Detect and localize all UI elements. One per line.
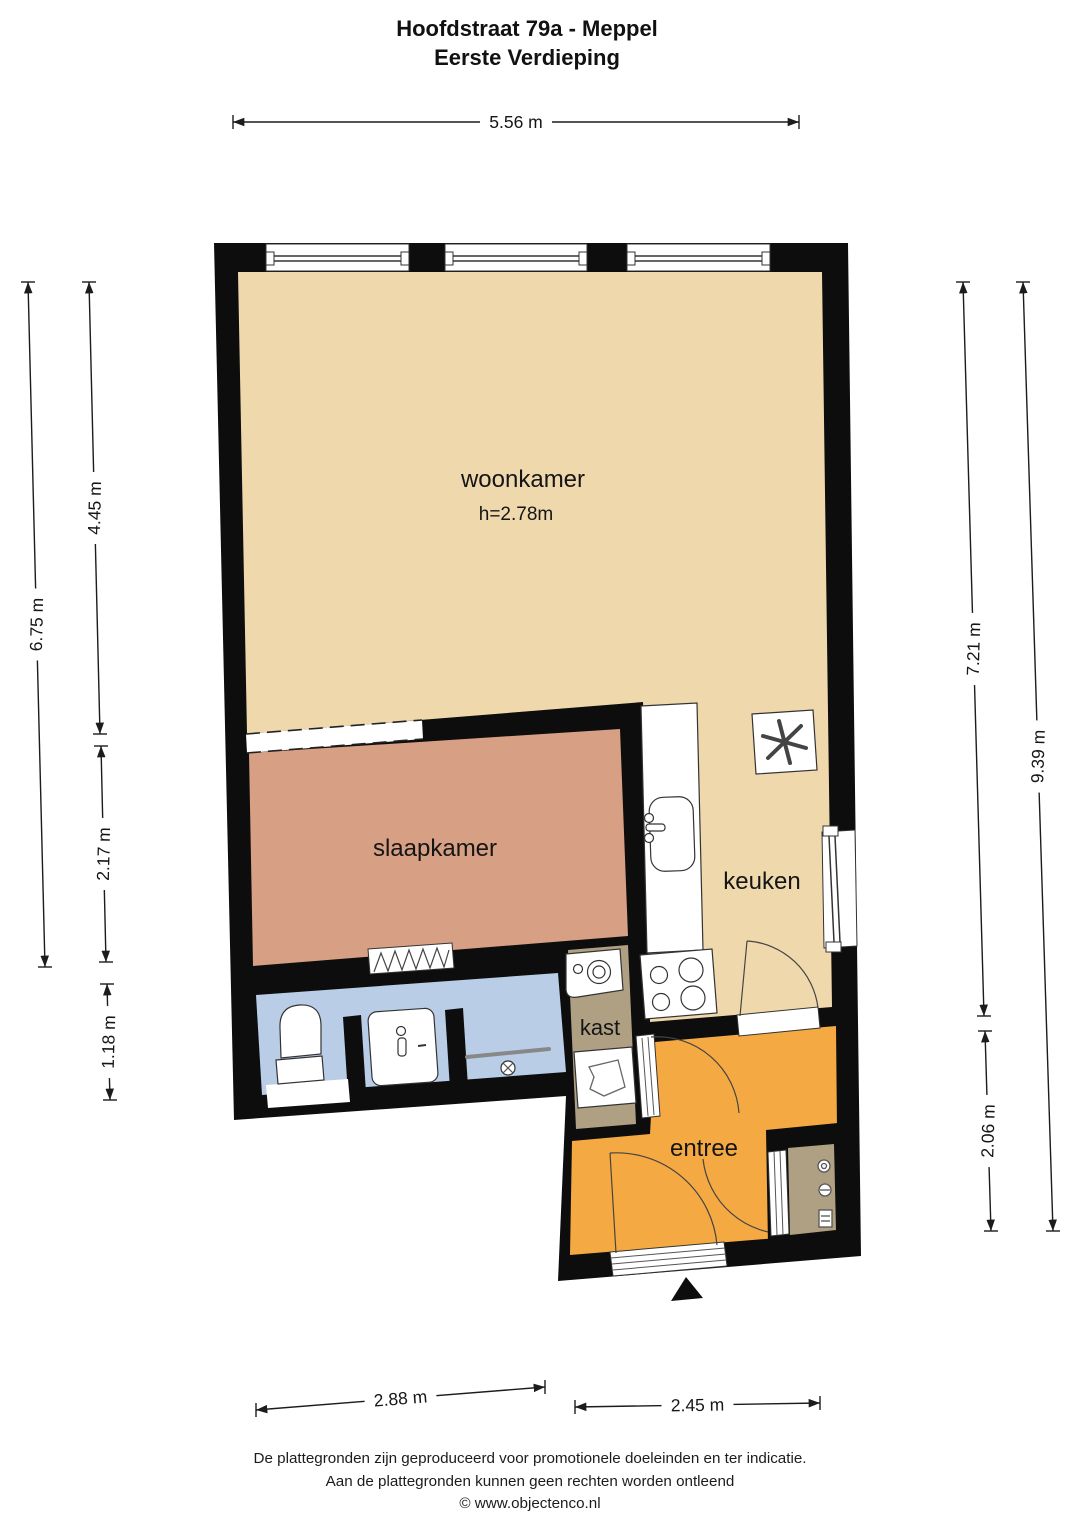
window-top-3 — [627, 244, 770, 271]
dimension-left-6-75: 6.75 m — [21, 282, 52, 967]
label-woonkamer: woonkamer — [460, 466, 585, 493]
dimension-left-4-45: 4.45 m — [81, 282, 108, 734]
label-slaapkamer: slaapkamer — [373, 835, 497, 862]
svg-text:4.45 m: 4.45 m — [84, 481, 105, 535]
meterkast-block — [766, 1123, 840, 1244]
window-keuken — [822, 826, 857, 952]
dimension-bottom-2-88: 2.88 m — [256, 1380, 545, 1417]
dimension-top: 5.56 m — [233, 110, 799, 135]
dimension-left-2-17: 2.17 m — [90, 746, 117, 962]
svg-text:2.17 m: 2.17 m — [93, 827, 114, 881]
label-kast: kast — [580, 1015, 620, 1040]
disclaimer-line1: De plattegronden zijn geproduceerd voor … — [0, 1448, 1060, 1471]
boiler-icon — [574, 1047, 636, 1108]
mechanical-ventilation-icon — [752, 710, 817, 774]
svg-text:2.88 m: 2.88 m — [373, 1386, 428, 1410]
label-keuken: keuken — [723, 868, 800, 895]
dimension-left-1-18: 1.18 m — [95, 984, 122, 1100]
svg-text:6.75 m: 6.75 m — [26, 598, 47, 652]
dimension-right-2-06: 2.06 m — [974, 1031, 1001, 1231]
disclaimer-line2: Aan de plattegronden kunnen geen rechten… — [0, 1471, 1060, 1494]
copyright: © www.objectenco.nl — [0, 1493, 1060, 1516]
toilet-icon — [276, 1005, 324, 1084]
radiator-icon — [368, 943, 454, 974]
floorplan-svg: woonkamer h=2.78m slaapkamer keuken kast… — [0, 0, 1080, 1527]
entrance-arrow-icon — [671, 1277, 703, 1301]
window-top-1 — [266, 244, 409, 271]
window-top-2 — [445, 244, 587, 271]
dimension-right-7-21: 7.21 m — [956, 282, 991, 1016]
stove-icon — [640, 949, 717, 1019]
washing-machine-icon — [566, 949, 623, 997]
dimension-bottom-2-45: 2.45 m — [575, 1392, 820, 1418]
label-woonkamer-height: h=2.78m — [479, 504, 553, 525]
label-entree: entree — [670, 1135, 738, 1162]
washbasin-icon — [367, 1008, 438, 1086]
svg-text:2.45 m: 2.45 m — [671, 1395, 725, 1416]
svg-text:7.21 m: 7.21 m — [963, 622, 984, 676]
dimension-right-9-39: 9.39 m — [1016, 282, 1060, 1231]
svg-text:1.18 m: 1.18 m — [98, 1015, 119, 1069]
svg-text:9.39 m: 9.39 m — [1027, 729, 1049, 783]
svg-text:2.06 m: 2.06 m — [977, 1104, 999, 1158]
disclaimer: De plattegronden zijn geproduceerd voor … — [0, 1448, 1060, 1516]
svg-text:5.56 m: 5.56 m — [489, 112, 543, 132]
floorplan-page: Hoofdstraat 79a - Meppel Eerste Verdiepi… — [0, 0, 1080, 1527]
kitchen-sink-icon — [645, 796, 696, 871]
